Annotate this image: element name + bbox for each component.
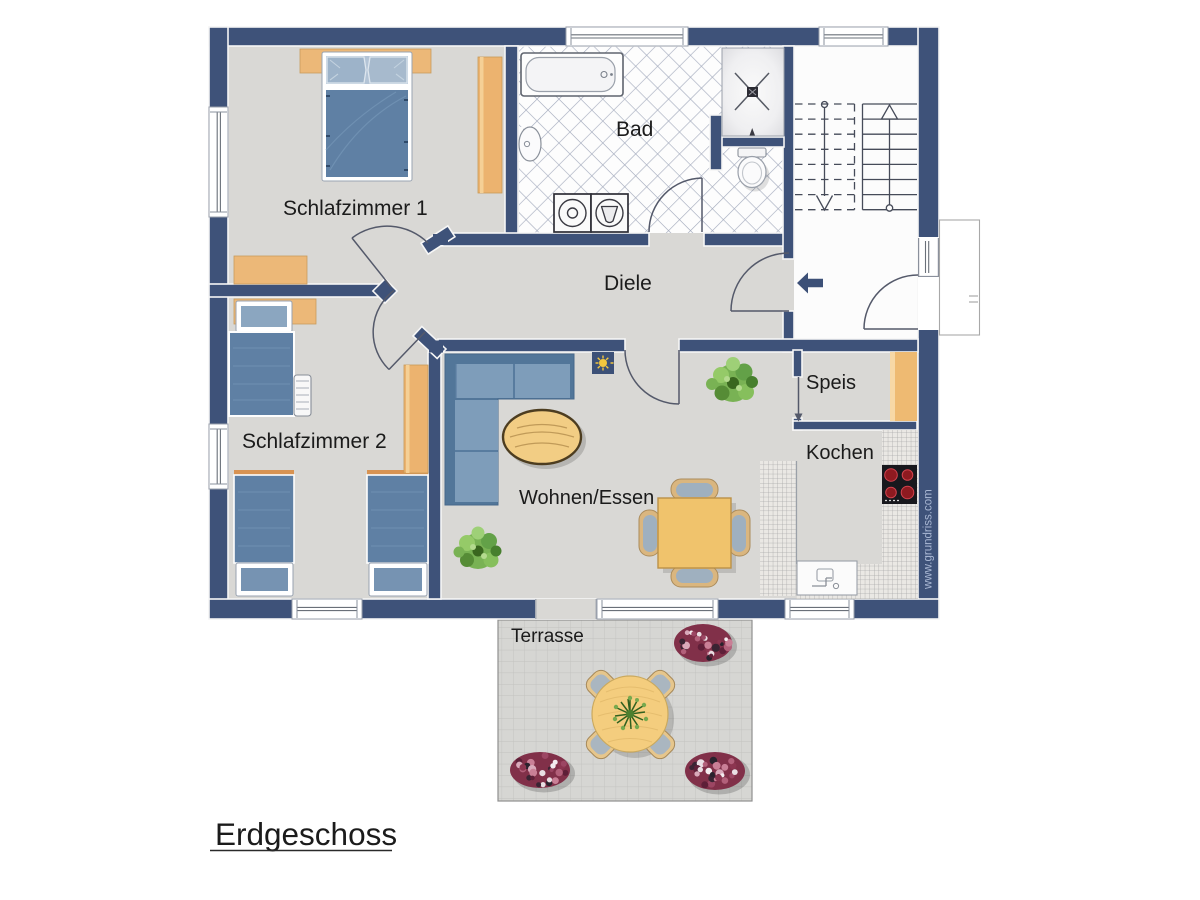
svg-text:Bad: Bad bbox=[616, 118, 653, 141]
svg-text:Schlafzimmer 1: Schlafzimmer 1 bbox=[283, 197, 428, 220]
svg-text:Wohnen/Essen: Wohnen/Essen bbox=[519, 487, 654, 509]
svg-text:www.grundriss.com: www.grundriss.com bbox=[923, 489, 935, 590]
svg-text:Terrasse: Terrasse bbox=[511, 626, 584, 647]
svg-text:Speis: Speis bbox=[806, 372, 856, 394]
svg-text:Diele: Diele bbox=[604, 272, 652, 295]
svg-text:Kochen: Kochen bbox=[806, 442, 874, 464]
svg-text:Schlafzimmer 2: Schlafzimmer 2 bbox=[242, 430, 387, 453]
svg-text:Erdgeschoss: Erdgeschoss bbox=[215, 816, 397, 852]
